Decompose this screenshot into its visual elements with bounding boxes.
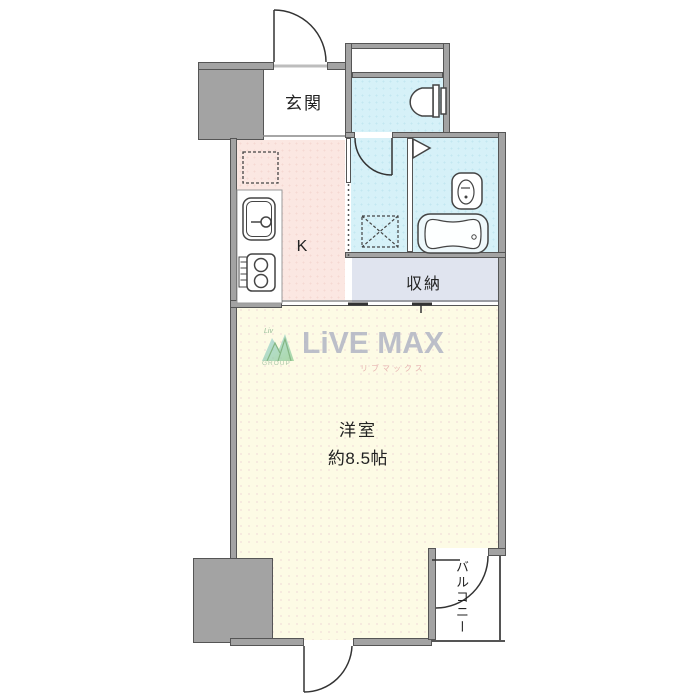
wall: [345, 252, 506, 258]
logo-brand-text: LiVE MAX: [302, 325, 444, 361]
wall: [488, 548, 506, 556]
wall: [443, 43, 450, 138]
entrance-door-icon: [274, 10, 327, 66]
western-room-area-label: 約8.5帖: [288, 444, 428, 469]
wall: [352, 72, 443, 78]
toilet-floor: [352, 78, 443, 132]
wall: [198, 62, 274, 70]
wall-pillar-bottom-left: [193, 558, 273, 643]
logo-icon-sublabel: GROUP: [262, 360, 291, 367]
logo-kana-text: リブマックス: [360, 363, 426, 374]
partition-kitchen-washroom: [346, 138, 351, 183]
storage-label: 収納: [372, 270, 476, 294]
wall: [230, 300, 282, 308]
livemax-watermark: Liv GROUP LiVE MAX リブマックス: [256, 329, 446, 377]
kitchen-label: K: [292, 238, 312, 256]
wall: [428, 548, 436, 640]
wall-left-outer: [230, 138, 237, 564]
wall: [230, 638, 304, 646]
wall-right-outer: [498, 132, 506, 556]
western-room-label: 洋室: [288, 416, 428, 441]
bathroom-floor: [413, 138, 498, 252]
entrance-label: 玄関: [263, 89, 345, 114]
washroom-floor: [351, 138, 408, 252]
kitchen-floor: [237, 140, 345, 300]
wall: [345, 43, 450, 49]
partition-washroom-bathroom: [407, 138, 413, 252]
south-door-icon: [304, 646, 352, 692]
wall-pillar-top-left: [198, 62, 264, 140]
balcony-label: バルコニー: [452, 552, 471, 642]
wall: [353, 638, 432, 646]
toilet-window-strip: [352, 49, 443, 72]
logo-icon-label: Liv: [264, 328, 273, 335]
wall: [345, 43, 352, 138]
floorplan: 玄関 K 収納 洋室 約8.5帖 バルコニー Liv GROUP LiVE MA…: [0, 0, 700, 700]
